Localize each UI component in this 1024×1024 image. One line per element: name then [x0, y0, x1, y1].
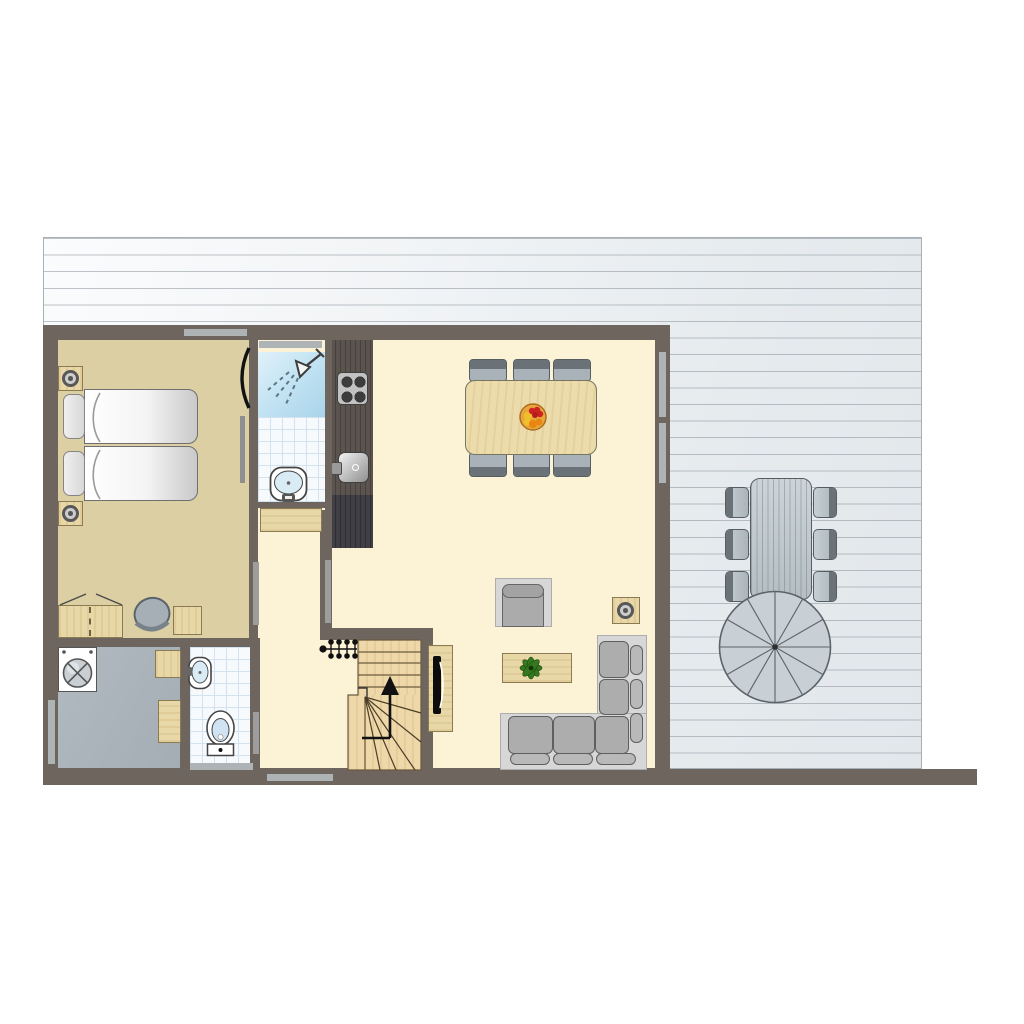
sink-drain [352, 464, 359, 471]
bedroom-side-table [173, 606, 202, 635]
sofa-cushion-4 [553, 716, 595, 754]
tv-screen-glare [438, 660, 447, 710]
dining-chair-bottom-1 [469, 452, 507, 477]
sofa-back-pillow-r1 [630, 645, 643, 675]
window-bathroom [259, 341, 322, 348]
sofa-back-pillow-b1 [510, 753, 550, 765]
speaker-icon-living [617, 602, 634, 619]
sofa-cushion-2 [599, 679, 629, 715]
speaker-icon-nightstand-bottom [62, 505, 79, 522]
sofa-back-pillow-r3 [630, 713, 643, 743]
sofa-cushion-1 [599, 641, 629, 678]
sofa-cushion-corner [595, 716, 629, 754]
bed-fold-lines [84, 388, 110, 502]
parasol-icon [718, 590, 832, 704]
door-panel-bedroom [240, 416, 245, 483]
sofa-cushion-3 [508, 716, 553, 754]
speaker-icon-nightstand-top [62, 370, 79, 387]
pillow-bed-2 [63, 451, 85, 496]
fruit-bowl-icon [519, 403, 547, 431]
armchair-back-cushion [502, 584, 544, 598]
shower-head-icon [258, 348, 325, 410]
sofa-back-pillow-r2 [630, 679, 643, 709]
wardrobe-open-doors [58, 591, 124, 606]
sofa-back-pillow-b2 [553, 753, 593, 765]
outdoor-chair-right-2 [813, 529, 837, 560]
hall-cabinet [260, 508, 322, 532]
bedroom-chair [130, 594, 174, 638]
toilet-washbasin-icon [187, 656, 213, 690]
window-bottom-hall [267, 774, 333, 781]
laundry-table-tall [158, 700, 181, 743]
plant-icon [517, 654, 545, 682]
kitchen-tap-icon [331, 462, 342, 475]
kitchen-tall-cabinet [330, 495, 373, 548]
dining-chair-bottom-2 [513, 452, 550, 477]
door-bedroom [253, 562, 259, 625]
outdoor-chair-left-2 [725, 529, 749, 560]
bathroom-washbasin-icon [269, 466, 309, 504]
floor-plan-canvas [0, 0, 1024, 1024]
outdoor-chair-left-1 [725, 487, 749, 518]
pillow-bed-1 [63, 394, 85, 439]
wardrobe-divider [89, 607, 91, 636]
window-right-1 [659, 352, 666, 417]
sofa-back-pillow-b3 [596, 753, 636, 765]
stairs-treads-and-arrow [315, 630, 435, 775]
stove-icon [337, 372, 368, 405]
washing-machine-drum-icon [58, 647, 97, 692]
wall-bathroom-right [325, 340, 332, 510]
dining-chair-top-1 [469, 359, 507, 382]
dining-chair-top-3 [553, 359, 591, 382]
dining-chair-bottom-3 [553, 452, 591, 477]
window-right-2 [659, 423, 666, 483]
laundry-table-small [155, 650, 181, 678]
toilet-icon [205, 710, 236, 758]
bedroom-door-arc-icon [234, 345, 252, 411]
dining-chair-top-2 [513, 359, 550, 382]
outdoor-chair-right-1 [813, 487, 837, 518]
door-toilet [253, 712, 259, 754]
window-bottom-toilet [190, 763, 253, 770]
wall-bedroom-bottom [58, 638, 260, 647]
outdoor-picnic-table [750, 478, 812, 600]
door-living [325, 560, 331, 623]
window-left-laundry [48, 700, 55, 764]
window-top-bedroom [184, 329, 247, 336]
